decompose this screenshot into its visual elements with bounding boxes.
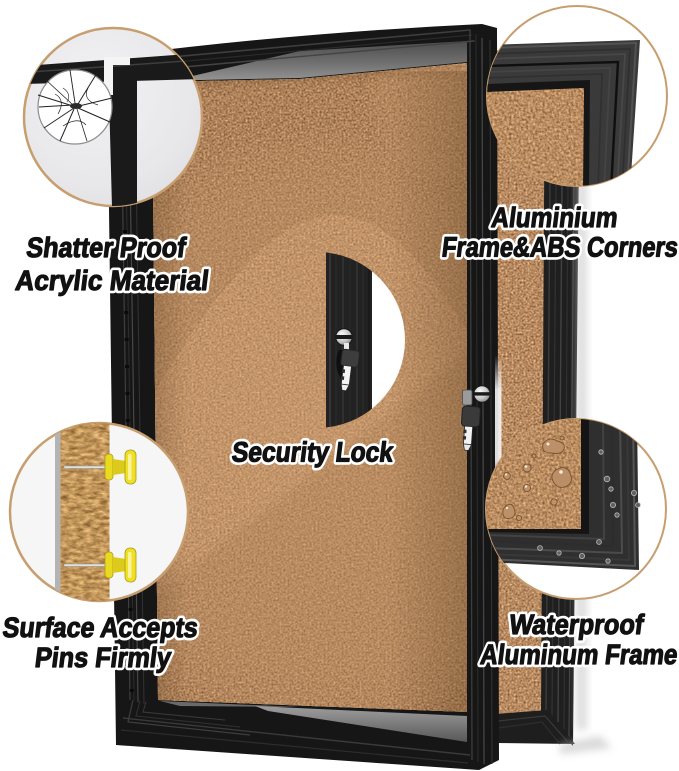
svg-text:Security Lock: Security Lock [230,436,395,467]
svg-text:Frame&ABS Corners: Frame&ABS Corners [440,232,679,263]
svg-text:Waterproof: Waterproof [508,609,646,640]
svg-text:Shatter Proof: Shatter Proof [25,232,188,263]
svg-text:Pins Firmly: Pins Firmly [33,642,173,673]
svg-text:Surface Accepts: Surface Accepts [1,612,200,643]
svg-text:Acrylic Material: Acrylic Material [14,265,211,296]
svg-text:Aluminum Frame: Aluminum Frame [479,639,679,670]
svg-text:Aluminium: Aluminium [490,202,620,233]
